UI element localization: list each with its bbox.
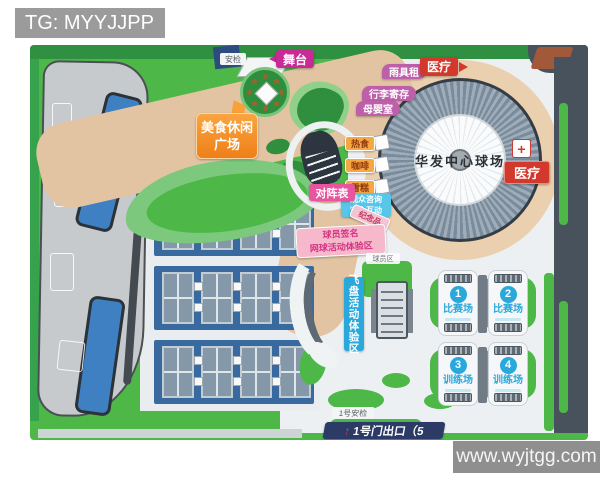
grandstand-rows [381, 287, 403, 333]
tennis-court-block [154, 340, 314, 404]
gate1-exit-text: 1号门出口（5 [352, 423, 425, 439]
umpire-booth [272, 356, 281, 365]
court-subtext [495, 389, 521, 392]
court-stand [444, 393, 472, 402]
hot-food-label: 热食 [345, 136, 375, 151]
grandstand-wing [371, 289, 376, 333]
nursing-room-label: 母婴室 [356, 101, 400, 116]
umpire-booth [194, 377, 203, 386]
tennis-court [240, 272, 272, 324]
court-1-competition: 1 比赛场 [438, 270, 478, 336]
autograph-line2: 网球活动体验区 [310, 239, 374, 255]
court-subtext [445, 318, 471, 321]
umpire-booth [272, 282, 281, 291]
umpire-booth [272, 303, 281, 312]
court-stand [494, 323, 522, 332]
website-watermark: www.wyjtgg.com [453, 441, 600, 473]
umpire-booth [233, 282, 242, 291]
court-stand [494, 393, 522, 402]
road-green-strip [544, 273, 554, 431]
umpire-booth [233, 377, 242, 386]
medical-label-east: 医疗 [504, 161, 550, 184]
umpire-booth [194, 303, 203, 312]
green-blob [382, 373, 410, 388]
court-2-competition: 2 比赛场 [488, 270, 528, 336]
food-plaza-line2: 广场 [214, 136, 240, 153]
umpire-booth [272, 377, 281, 386]
court-4-training: 4 训练场 [488, 342, 528, 406]
food-plaza-line1: 美食休闲 [201, 119, 253, 136]
court-number-badge: 1 [450, 286, 467, 303]
court-number-badge: 3 [450, 357, 467, 374]
amphitheater-steps [305, 150, 341, 186]
court-divider-wall [478, 347, 487, 403]
medical-label-north: 医疗 [420, 57, 458, 76]
umpire-booth [233, 303, 242, 312]
tennis-court [201, 346, 233, 398]
tennis-court [201, 272, 233, 324]
building-detail [57, 340, 86, 373]
tennis-court [162, 272, 194, 324]
building-detail [50, 253, 74, 291]
medical-label-pointer [459, 62, 468, 72]
court-divider-wall [478, 275, 487, 333]
coffee-label: 咖啡 [345, 158, 375, 173]
venue-map: 华发中心球场 1 比赛场 2 [30, 45, 588, 440]
road-green-strip [559, 103, 568, 225]
food-plaza-label: 美食休闲 广场 [196, 113, 258, 159]
court-stand [444, 274, 472, 283]
umpire-booth [272, 229, 281, 238]
court-label: 训练场 [443, 375, 473, 387]
bottom-road-strip [38, 429, 302, 438]
player-zone-label: 球员区 [366, 253, 400, 264]
umpire-booth [233, 356, 242, 365]
snack-booth [373, 156, 390, 173]
court-stand [494, 346, 522, 355]
venue-map-screenshot: 华发中心球场 1 比赛场 2 [0, 0, 600, 480]
up-arrow-icon: ↑ [343, 424, 351, 438]
road-green-strip [559, 301, 568, 413]
court-number-badge: 2 [500, 286, 517, 303]
medical-cross-icon: + [512, 139, 531, 158]
court-subtext [495, 318, 521, 321]
umpire-booth [194, 282, 203, 291]
tg-watermark-banner: TG: MYYJJPP [15, 8, 165, 38]
court-stand [444, 346, 472, 355]
court-label: 训练场 [493, 375, 523, 387]
court-stand [494, 274, 522, 283]
medical-cross-glyph: + [517, 141, 525, 157]
grandstand-wing [408, 289, 413, 333]
snack-booth [373, 134, 390, 151]
court-subtext [445, 389, 471, 392]
stage-label: 舞台 [276, 50, 314, 68]
tennis-court [240, 346, 272, 398]
luggage-storage-label: 行李寄存 [362, 86, 416, 101]
court-stand [444, 323, 472, 332]
court-3-training: 3 训练场 [438, 342, 478, 406]
grandstand [376, 281, 408, 339]
security-check-label: 安检 [220, 53, 246, 65]
gate1-exit-banner: ↑ 1号门出口（5 [323, 422, 446, 439]
gate1-security-label: 1号安检 [331, 407, 374, 419]
court-number-badge: 4 [500, 357, 517, 374]
frisbee-zone-label: 飞盘活动体验区 [344, 277, 364, 351]
match-schedule-label: 对阵表 [309, 184, 355, 201]
court-label: 比赛场 [443, 304, 473, 316]
tennis-court [162, 346, 194, 398]
court-label: 比赛场 [493, 304, 523, 316]
umpire-booth [194, 356, 203, 365]
